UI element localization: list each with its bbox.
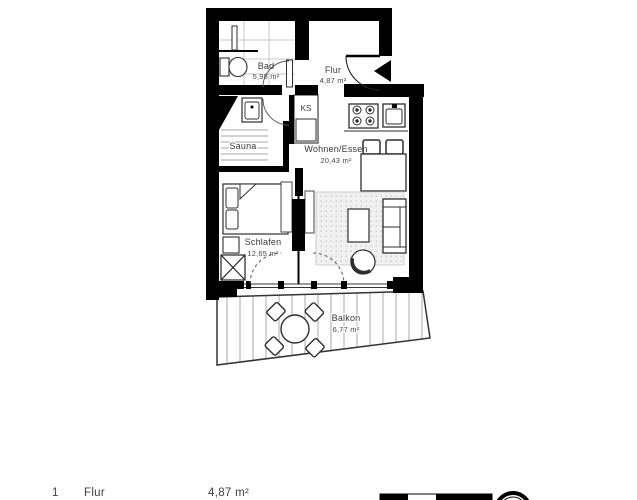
- sink-basin: [386, 109, 402, 124]
- label-schlafen: Schlafen: [245, 237, 282, 247]
- label-ks: KS: [301, 104, 312, 113]
- living-area: [316, 192, 406, 279]
- area-bad: 5,98 m²: [253, 72, 280, 81]
- floorplan-drawing: Bad 5,98 m² Flur 4,87 m² KS Sauna Wohnen…: [0, 0, 637, 500]
- bath-door-leaf: [287, 60, 293, 87]
- faucet: [392, 104, 397, 108]
- wall-bad-flur: [295, 8, 309, 60]
- coffee-table: [348, 209, 369, 242]
- area-wohnen: 20,43 m²: [320, 156, 351, 165]
- kitchen: [344, 104, 408, 131]
- legend-row: 1 Flur 4,87 m²: [0, 487, 637, 500]
- dining-table: [361, 154, 406, 191]
- wall-corner-chamfer: [219, 96, 238, 130]
- area-flur: 4,87 m²: [320, 76, 347, 85]
- label-bad: Bad: [258, 61, 275, 71]
- wall-ks-top: [295, 85, 318, 95]
- pillow: [226, 210, 238, 229]
- wall-bottom-right: [393, 277, 423, 293]
- partition-block: [292, 199, 305, 251]
- washbasin-drain: [251, 106, 254, 109]
- lowboard-living: [305, 191, 314, 233]
- washbasin-bowl: [245, 102, 259, 119]
- label-flur: Flur: [325, 65, 341, 75]
- wall-left: [206, 8, 219, 300]
- area-balkon: 6,77 m²: [333, 325, 360, 334]
- pillow: [226, 188, 238, 208]
- area-schlafen: 12,65 m²: [247, 249, 278, 258]
- floorplan-page: Bad 5,98 m² Flur 4,87 m² KS Sauna Wohnen…: [0, 0, 637, 500]
- wall-ks-left: [289, 95, 294, 144]
- wall-entry-right: [379, 21, 392, 56]
- toilet-tank: [220, 58, 229, 76]
- toilet-bowl: [229, 58, 247, 77]
- label-balkon: Balkon: [332, 313, 361, 323]
- ks-closet: [294, 95, 318, 143]
- legend-room-name: Flur: [84, 487, 105, 499]
- balcony: [217, 291, 430, 365]
- entry-arrow-icon: [374, 60, 391, 82]
- dining-chair: [386, 140, 403, 154]
- legend-room-area: 4,87 m²: [208, 487, 249, 499]
- wall-bottom-left: [206, 281, 237, 297]
- nightstand: [223, 237, 239, 253]
- label-sauna: Sauna: [229, 141, 256, 151]
- partition-wall: [281, 168, 314, 284]
- balcony-floor: [217, 291, 430, 365]
- label-wohnen: Wohnen/Essen: [304, 144, 367, 154]
- wall-sauna-right: [283, 121, 289, 172]
- legend-index: 1: [52, 487, 59, 499]
- wall-bad-bottom: [219, 85, 282, 95]
- balcony-table: [281, 315, 309, 343]
- bedroom: [221, 184, 288, 280]
- wall-right: [409, 97, 423, 287]
- radiator: [232, 26, 237, 50]
- wall-sauna-bottom: [219, 166, 289, 172]
- fridge-unit: [296, 119, 316, 141]
- wall-kitchen-top: [344, 84, 424, 97]
- partition-block: [295, 168, 303, 196]
- shaft: [221, 255, 245, 280]
- sofa: [383, 199, 406, 253]
- lowboard-bedroom: [281, 182, 292, 232]
